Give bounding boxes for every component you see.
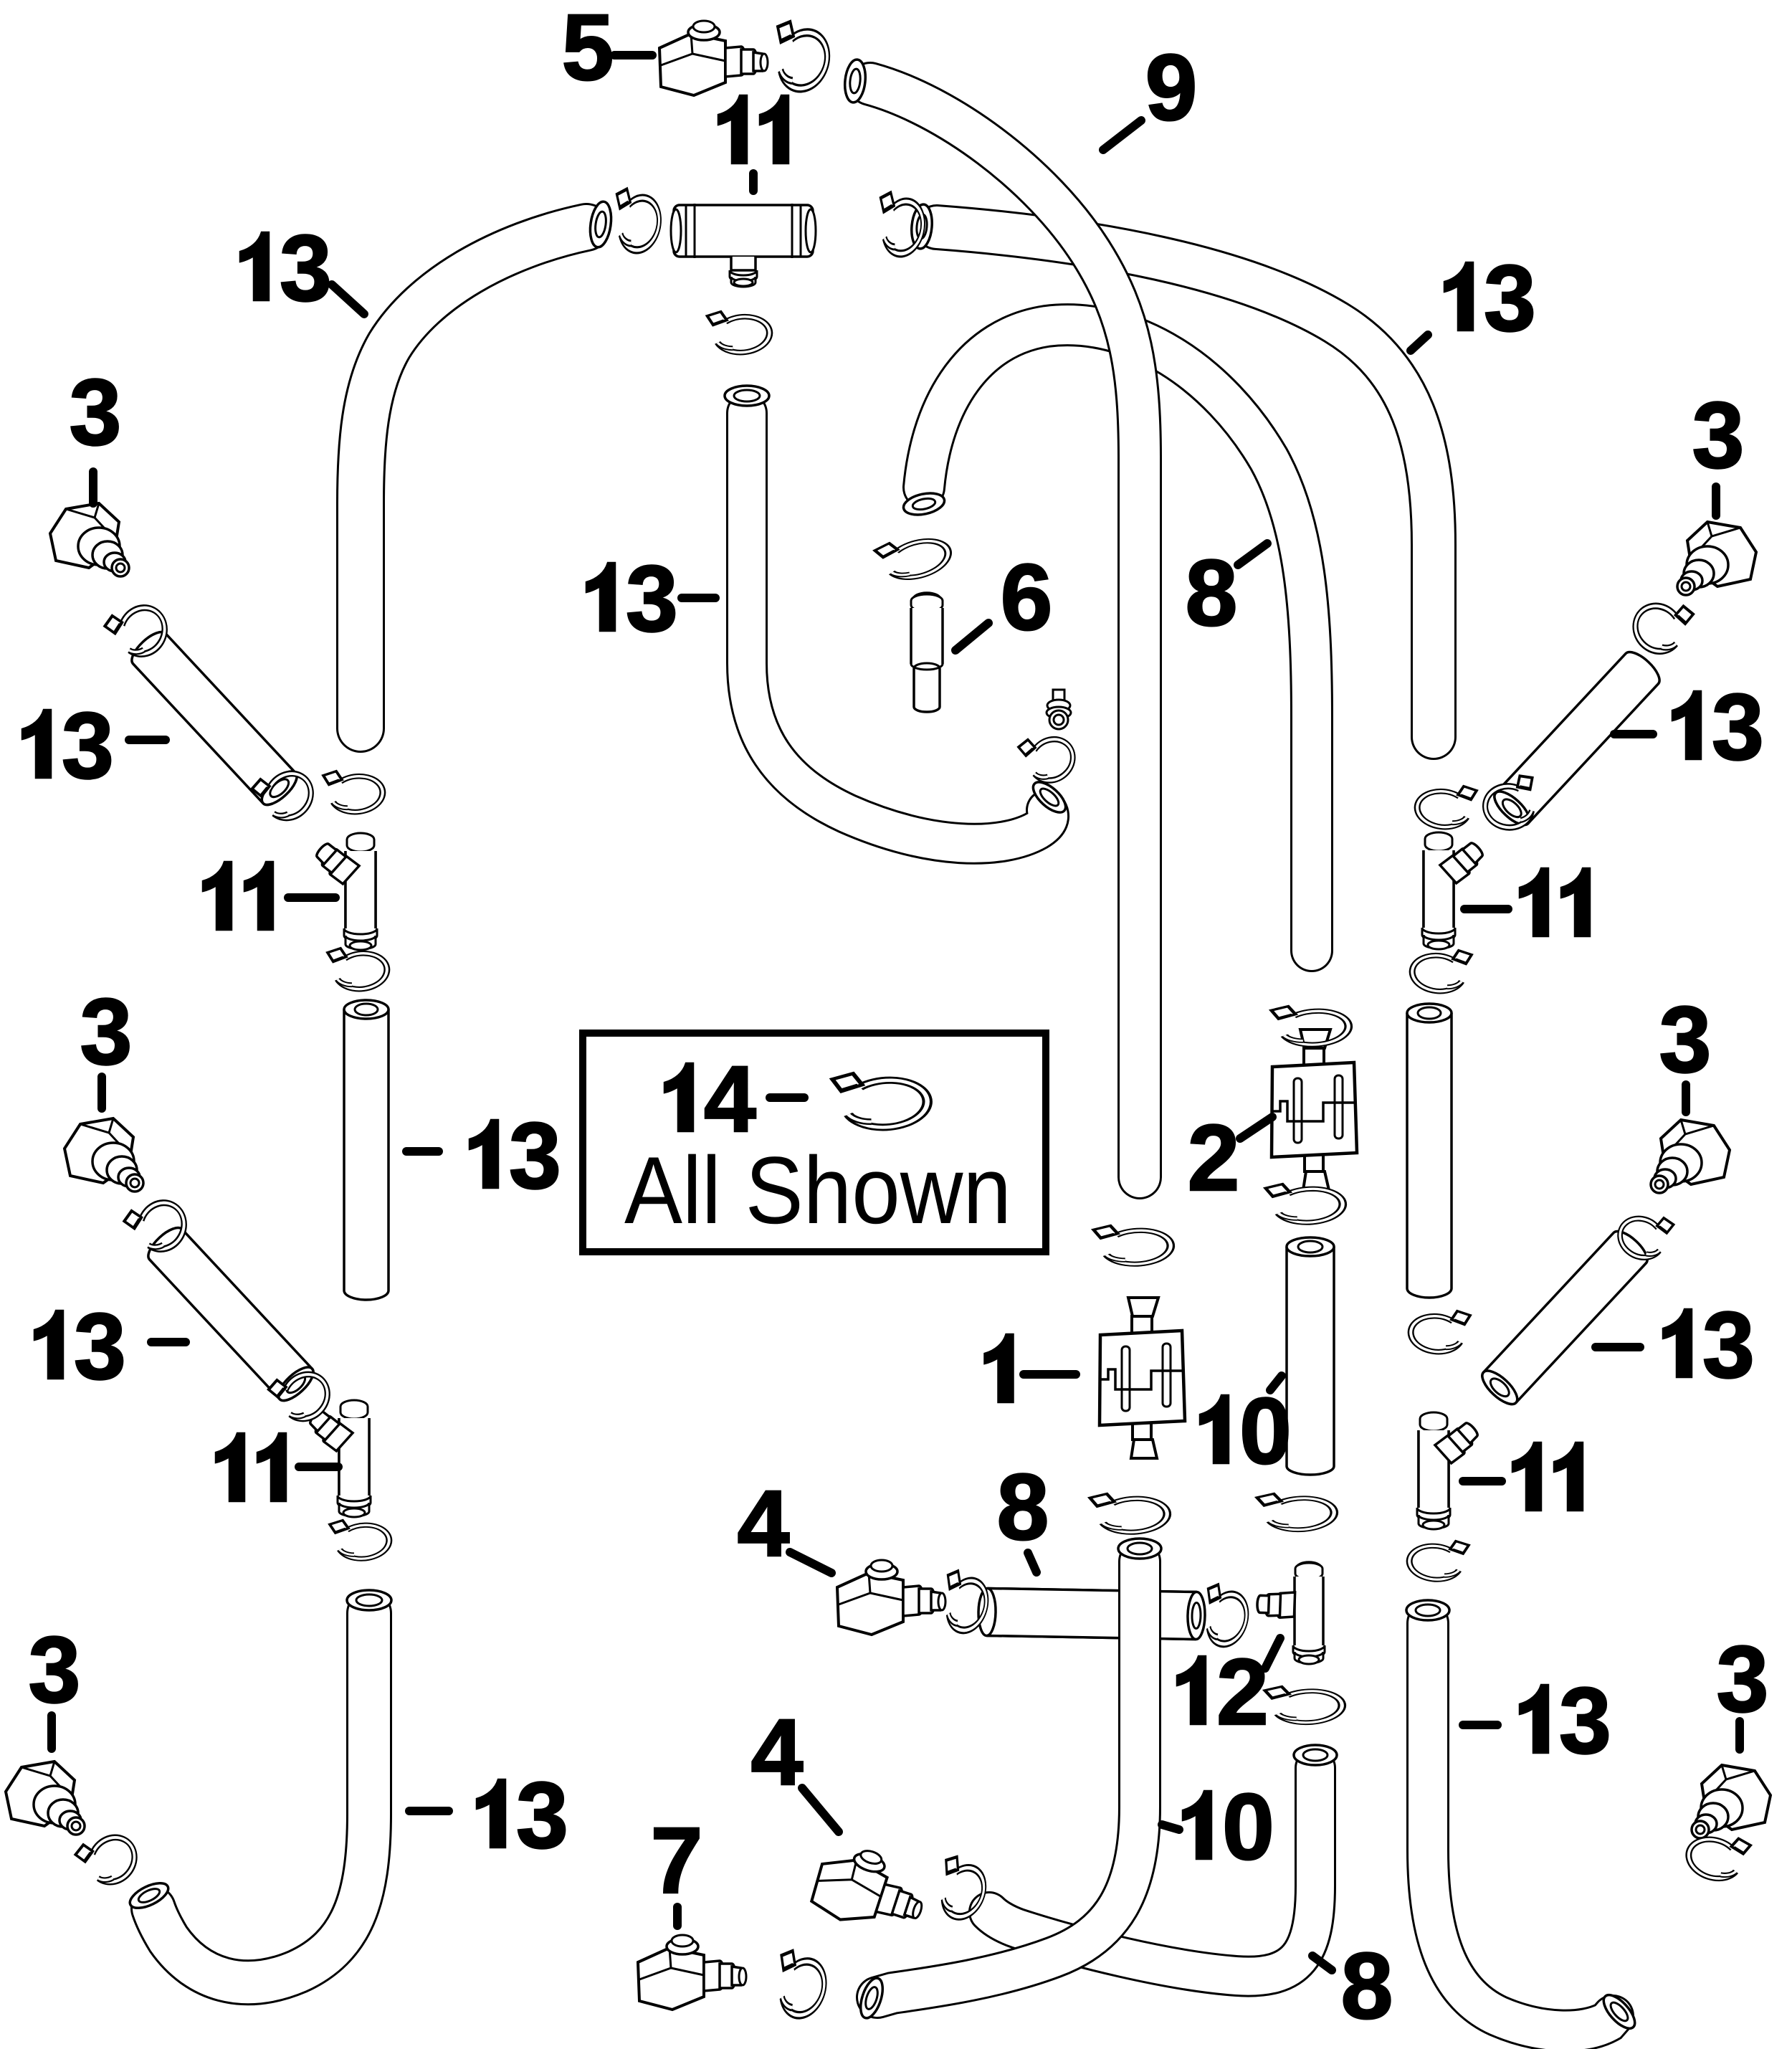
svg-text:3: 3 (74, 1293, 126, 1399)
svg-text:2: 2 (1188, 1105, 1240, 1210)
svg-text:8: 8 (997, 1454, 1049, 1559)
svg-text:3: 3 (62, 693, 114, 798)
svg-text:6: 6 (1001, 544, 1053, 650)
svg-text:8: 8 (1186, 540, 1238, 645)
svg-text:0: 0 (1222, 1774, 1274, 1879)
svg-text:0: 0 (1239, 1378, 1292, 1483)
svg-text:3: 3 (29, 1617, 81, 1722)
svg-text:3: 3 (70, 359, 122, 465)
svg-text:4: 4 (751, 1699, 804, 1805)
svg-text:2: 2 (1216, 1639, 1269, 1744)
svg-text:5: 5 (562, 0, 614, 100)
svg-text:3: 3 (626, 546, 678, 651)
svg-text:3: 3 (1692, 382, 1745, 488)
svg-text:3: 3 (80, 979, 133, 1084)
svg-text:4: 4 (704, 1046, 756, 1151)
svg-text:7: 7 (651, 1807, 703, 1913)
svg-text:3: 3 (1717, 1626, 1769, 1731)
svg-text:4: 4 (738, 1470, 790, 1576)
svg-text:3: 3 (1702, 1292, 1755, 1397)
svg-text:3: 3 (509, 1103, 561, 1208)
svg-text:3: 3 (280, 215, 332, 320)
svg-text:3: 3 (1712, 674, 1764, 779)
svg-text:8: 8 (1341, 1933, 1393, 2038)
svg-text:9: 9 (1145, 34, 1198, 140)
svg-text:3: 3 (516, 1762, 568, 1868)
svg-text:3: 3 (1659, 987, 1712, 1092)
svg-text:3: 3 (1559, 1668, 1611, 1773)
svg-text:3: 3 (1484, 245, 1536, 351)
svg-text:All Shown: All Shown (624, 1138, 1011, 1244)
